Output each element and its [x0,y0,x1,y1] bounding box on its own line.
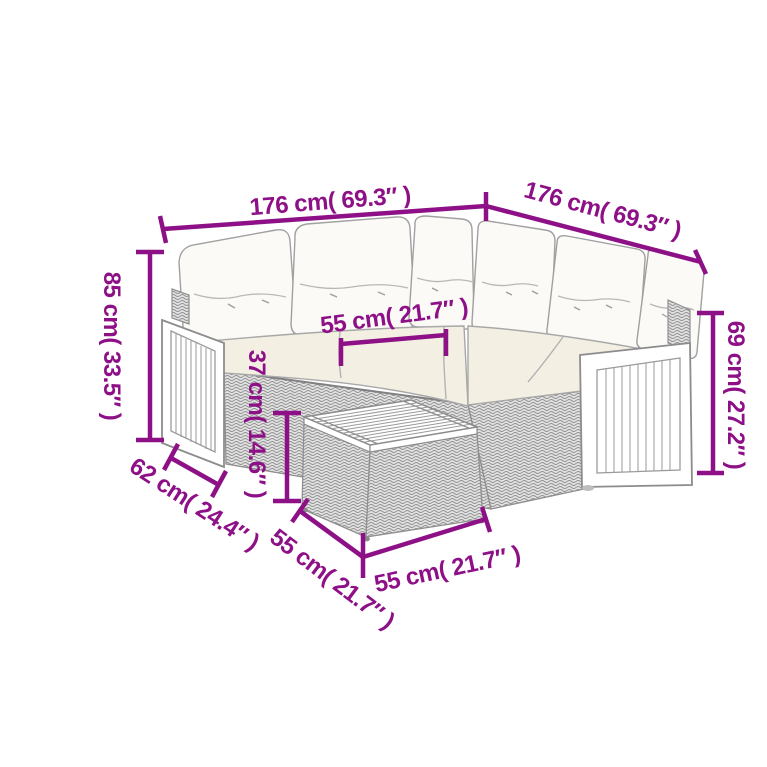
product-diagram: 176 cm( 69.3″ ) 176 cm( 69.3″ ) 85 cm( 3… [0,0,767,767]
back-cushion-corner [472,221,555,338]
dim-total-height-line [136,252,164,440]
coffee-table [300,400,485,541]
left-armrest-post [172,289,189,324]
product-diagram-svg: 176 cm( 69.3″ ) 176 cm( 69.3″ ) 85 cm( 3… [0,0,767,767]
dim-back-height-line [697,313,724,473]
dim-table-height-label: 37 cm( 14.6″ ) [243,350,270,499]
armrest-foot [582,485,594,491]
left-armrest-panel [162,320,224,467]
dim-back-height-label: 69 cm( 27.2″ ) [722,321,749,470]
dim-arm-depth-label: 62 cm( 24.4″ ) [125,452,264,556]
dim-total-height-label: 85 cm( 33.5″ ) [98,272,125,421]
right-armrest-panel [580,343,692,491]
